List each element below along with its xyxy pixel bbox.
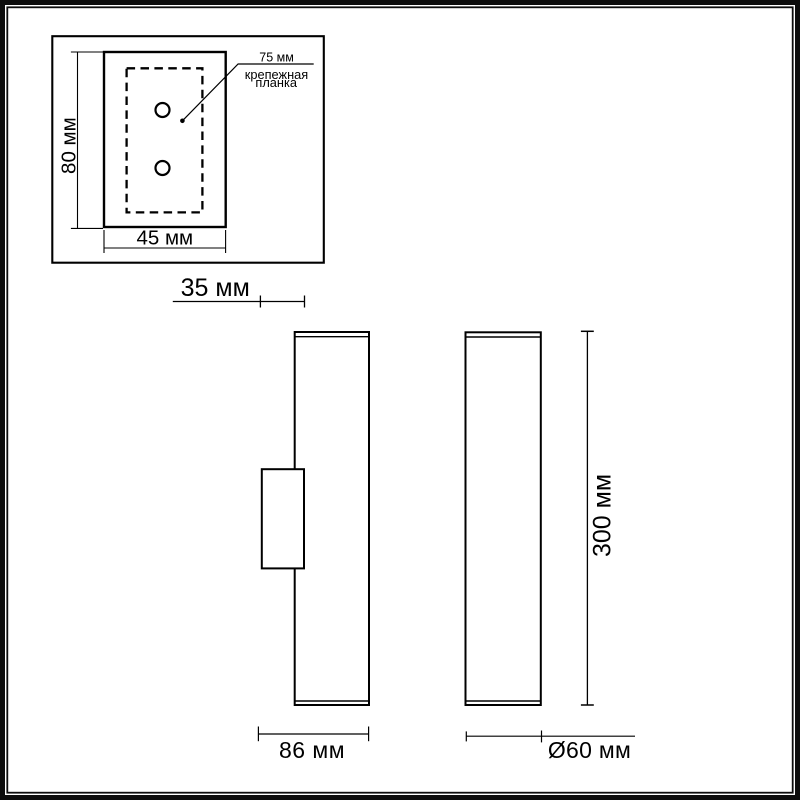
svg-text:планка: планка xyxy=(255,75,297,90)
svg-text:75 мм: 75 мм xyxy=(259,50,294,64)
svg-text:86 мм: 86 мм xyxy=(279,737,345,763)
svg-text:45 мм: 45 мм xyxy=(136,227,193,250)
svg-text:300 мм: 300 мм xyxy=(589,474,617,557)
svg-text:Ø60 мм: Ø60 мм xyxy=(548,737,631,763)
svg-text:80 мм: 80 мм xyxy=(58,117,81,174)
svg-text:35 мм: 35 мм xyxy=(181,274,250,302)
